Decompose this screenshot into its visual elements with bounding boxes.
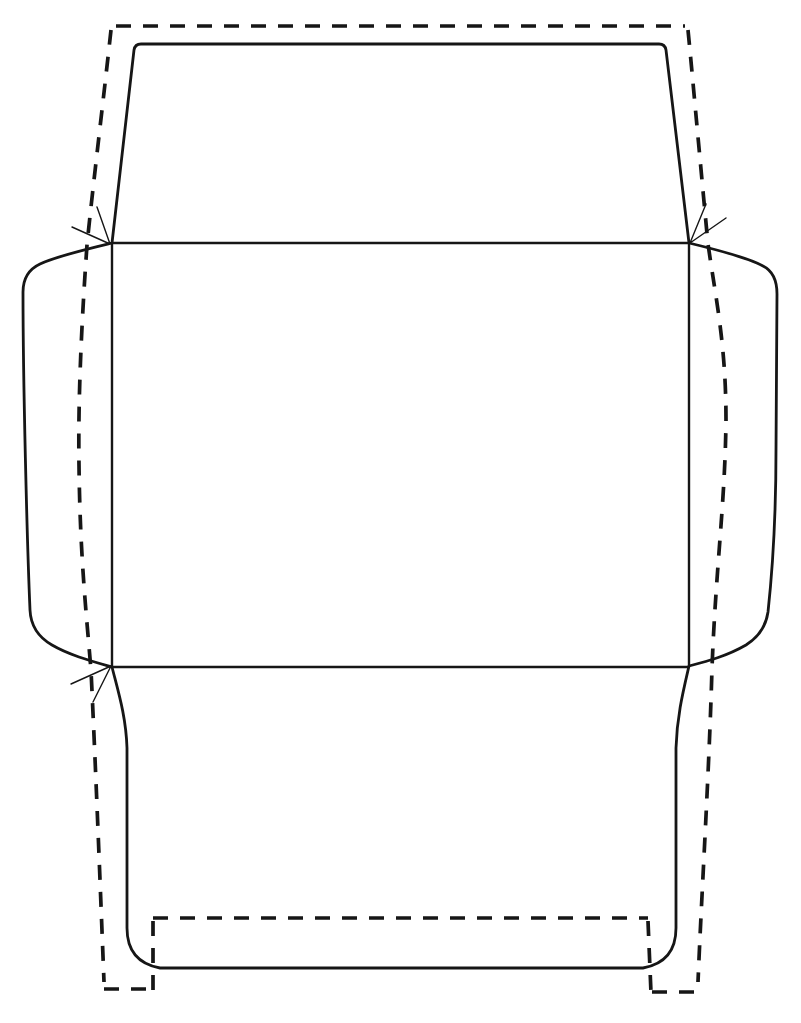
fold-mark-arrow-top-left (72, 207, 110, 244)
envelope-template-sheet (0, 0, 801, 1023)
finished-envelope-dashed-outline (79, 26, 726, 992)
fold-lines (112, 243, 689, 667)
envelope-template-diagram (0, 0, 801, 1023)
template-cut-outline (23, 44, 777, 968)
fold-mark-arrow-top-right (690, 204, 726, 243)
bottom-band-dashed-outline (153, 918, 651, 993)
